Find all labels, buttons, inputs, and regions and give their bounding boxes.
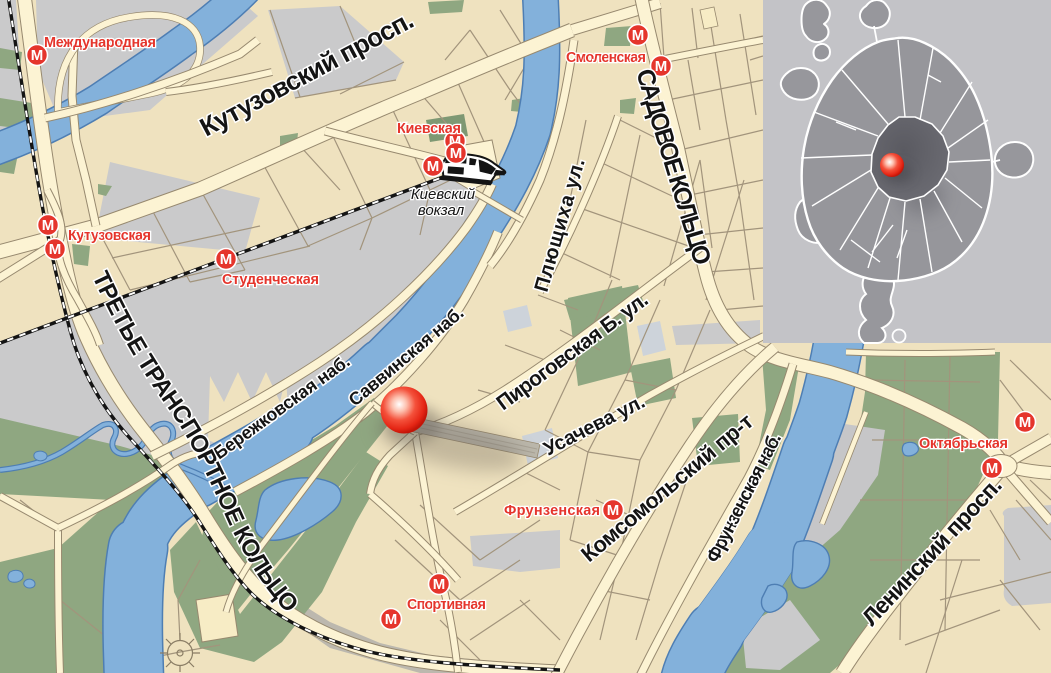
svg-text:М: М [632,27,645,44]
svg-text:Киевская: Киевская [397,121,461,137]
svg-text:Спортивная: Спортивная [407,597,486,613]
svg-text:М: М [450,145,463,162]
svg-text:М: М [49,241,62,258]
svg-text:вокзал: вокзал [418,202,465,219]
svg-text:М: М [220,251,233,268]
svg-text:М: М [1019,414,1032,431]
svg-text:М: М [31,47,44,64]
svg-text:М: М [42,217,55,234]
svg-text:М: М [427,158,440,175]
svg-text:Фрунзенская: Фрунзенская [504,503,600,519]
svg-text:М: М [385,611,398,628]
svg-text:Октябрьская: Октябрьская [919,436,1008,452]
svg-text:Студенческая: Студенческая [222,272,319,288]
svg-text:Киевский: Киевский [411,186,476,203]
svg-text:Смоленская: Смоленская [566,50,646,66]
svg-text:Международная: Международная [44,35,156,51]
svg-text:М: М [433,576,446,593]
svg-text:Кутузовская: Кутузовская [68,228,151,244]
